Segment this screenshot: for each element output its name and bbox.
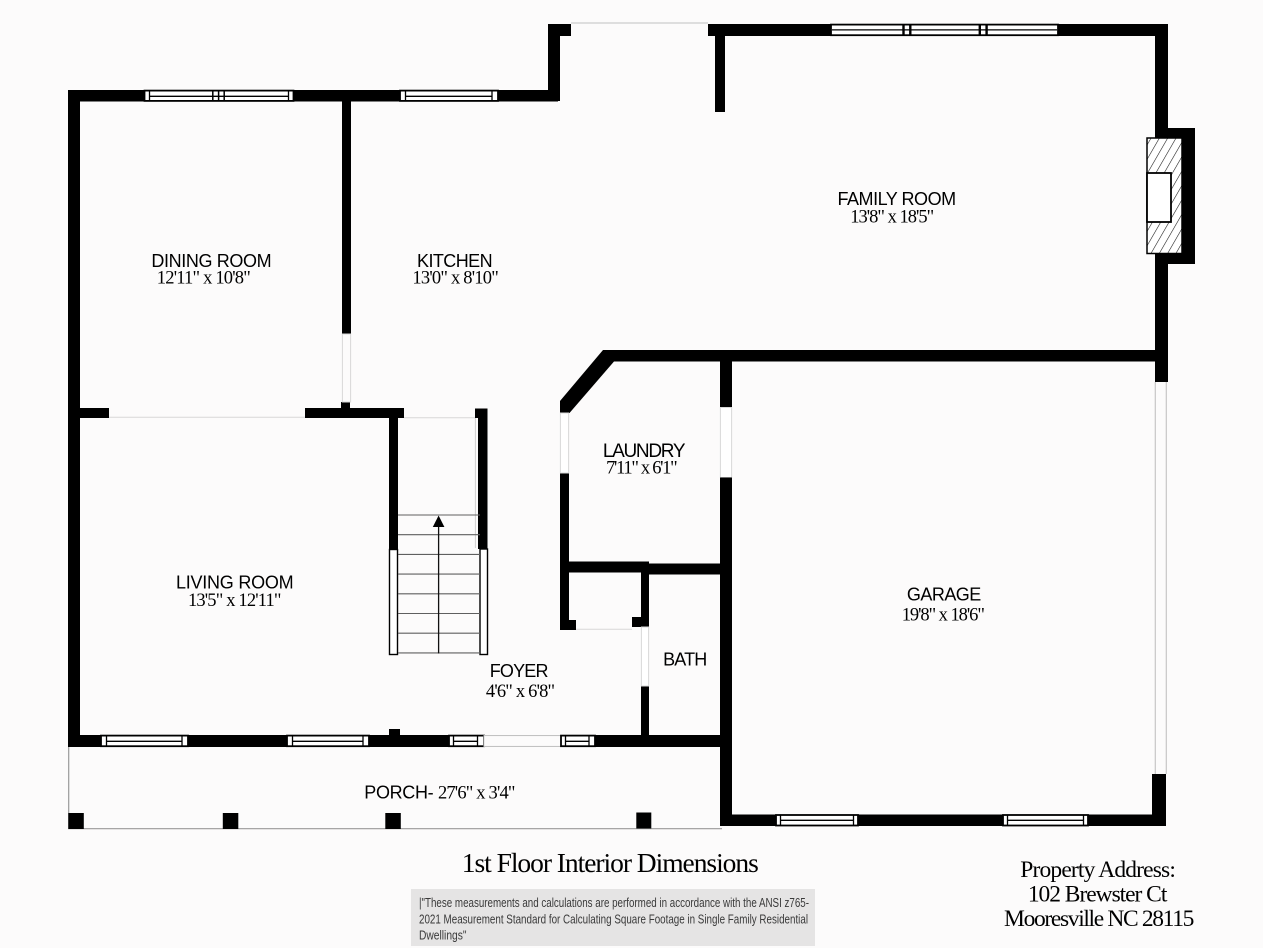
svg-text:4'6" x 6'8": 4'6" x 6'8" [486,682,555,702]
svg-text:BATH: BATH [663,650,707,670]
svg-text:13'0" x 8'10": 13'0" x 8'10" [412,269,498,289]
svg-text:LIVING ROOM: LIVING ROOM [176,573,294,593]
svg-text:|"These measurements and calcu: |"These measurements and calculations ar… [419,896,809,910]
svg-text:13'5" x 12'11": 13'5" x 12'11" [188,591,282,611]
svg-text:102 Brewster Ct: 102 Brewster Ct [1028,882,1168,908]
svg-text:13'8" x 18'5": 13'8" x 18'5" [850,208,934,228]
svg-text:7'11" x 6'1": 7'11" x 6'1" [606,459,678,479]
svg-text:1st Floor Interior Dimensions: 1st Floor Interior Dimensions [462,847,759,878]
svg-text:GARAGE: GARAGE [907,585,981,605]
svg-text:PORCH- 27'6" x 3'4": PORCH- 27'6" x 3'4" [364,783,515,804]
svg-text:FAMILY ROOM: FAMILY ROOM [838,189,957,209]
svg-text:FOYER: FOYER [490,661,549,681]
svg-text:Property Address:: Property Address: [1020,857,1176,883]
svg-text:2021 Measurement Standard for: 2021 Measurement Standard for Calculatin… [419,913,808,927]
svg-text:19'8" x 18'6": 19'8" x 18'6" [902,606,985,626]
svg-text:12'11" x 10'8": 12'11" x 10'8" [157,269,251,289]
svg-text:Dwellings": Dwellings" [419,929,467,943]
svg-text:Mooresville NC 28115: Mooresville NC 28115 [1004,906,1194,932]
